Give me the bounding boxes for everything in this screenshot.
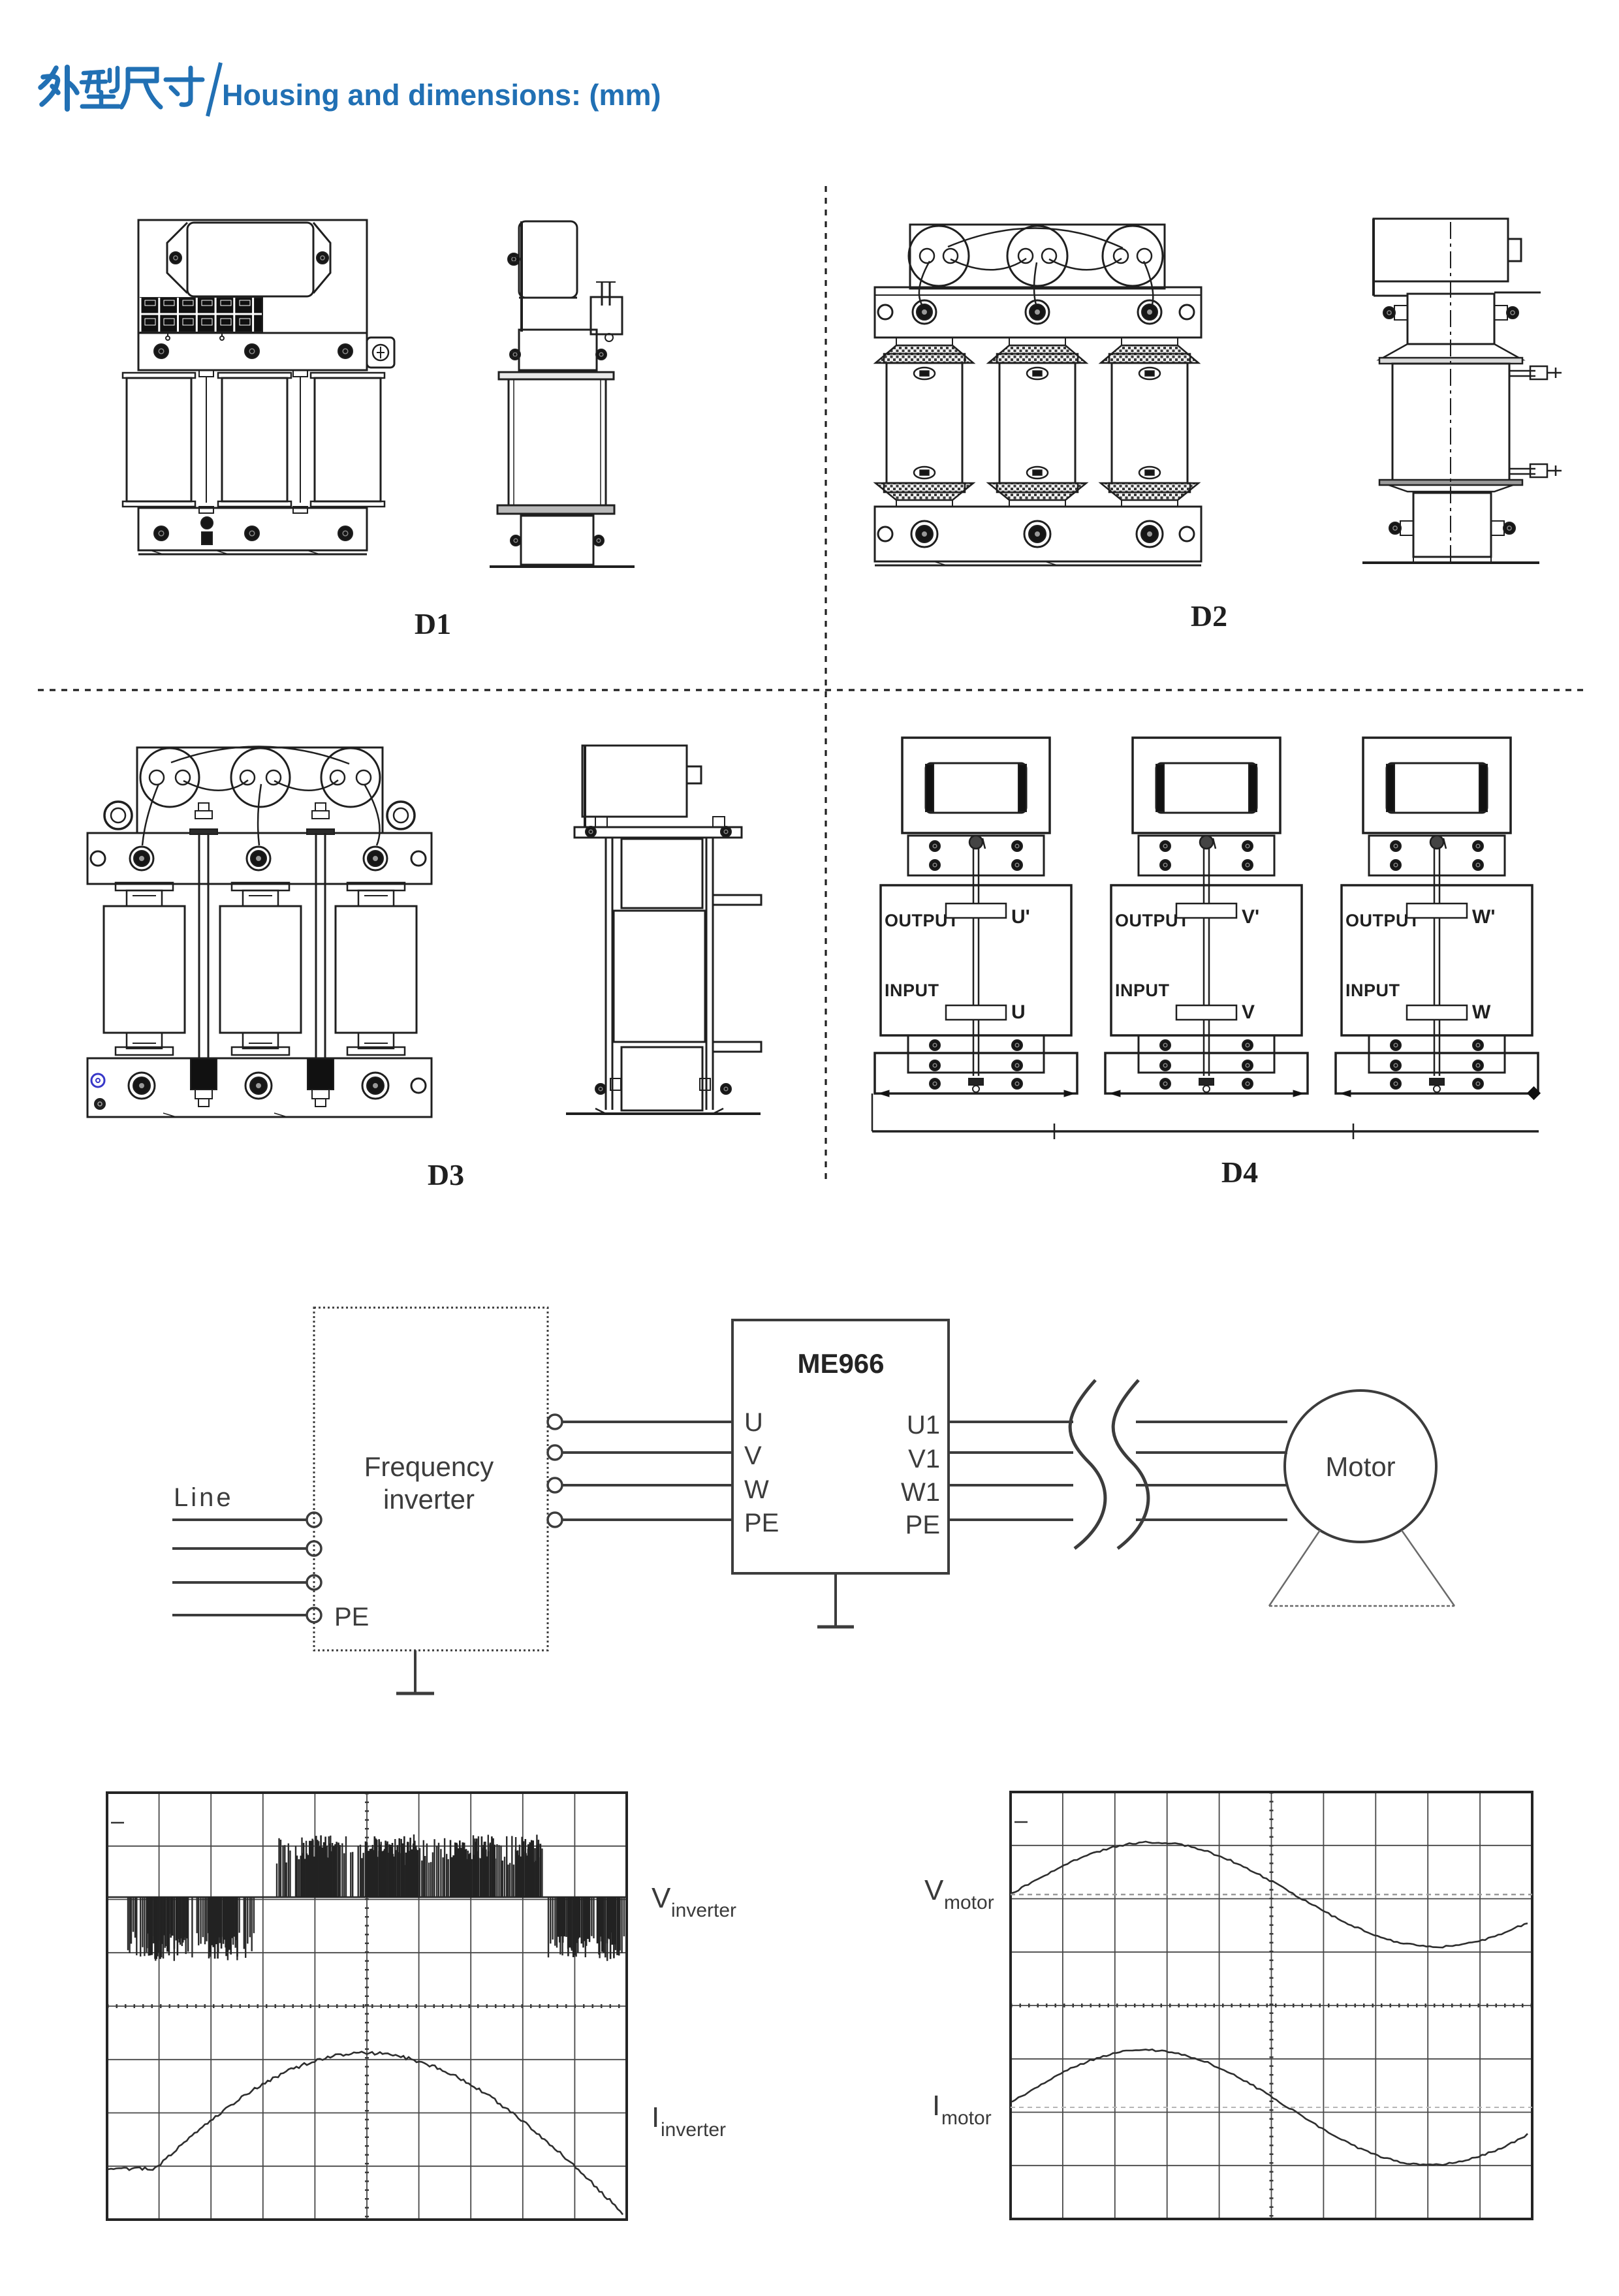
- svg-text:ME966: ME966: [797, 1348, 884, 1379]
- svg-text:V: V: [924, 1874, 944, 1906]
- svg-text:Motor: Motor: [1325, 1451, 1395, 1482]
- svg-text:inverter: inverter: [383, 1484, 475, 1515]
- svg-text:INPUT: INPUT: [885, 981, 939, 1000]
- svg-text:D3: D3: [428, 1158, 464, 1191]
- svg-text:motor: motor: [944, 1892, 994, 1913]
- svg-text:V: V: [1242, 1001, 1255, 1023]
- svg-text:PE: PE: [744, 1509, 779, 1537]
- svg-text:inverter: inverter: [671, 1900, 736, 1921]
- svg-text:inverter: inverter: [661, 2119, 726, 2141]
- svg-text:V: V: [744, 1441, 762, 1470]
- svg-text:D4: D4: [1221, 1156, 1258, 1189]
- svg-text:W: W: [1472, 1001, 1491, 1023]
- svg-text:U: U: [1011, 1001, 1026, 1023]
- svg-text:PE: PE: [334, 1603, 369, 1631]
- svg-text:W: W: [744, 1475, 769, 1504]
- svg-text:INPUT: INPUT: [1345, 981, 1400, 1000]
- svg-text:W1: W1: [901, 1478, 940, 1507]
- svg-text:Housing and dimensions: (mm): Housing and dimensions: (mm): [222, 78, 661, 112]
- svg-text:U: U: [744, 1408, 763, 1437]
- svg-text:I: I: [652, 2101, 659, 2133]
- svg-text:U1: U1: [907, 1411, 940, 1439]
- svg-text:V: V: [652, 1882, 671, 1914]
- svg-text:U': U': [1011, 906, 1030, 928]
- svg-text:V1: V1: [908, 1445, 940, 1473]
- svg-text:D2: D2: [1191, 599, 1227, 633]
- svg-text:W': W': [1472, 906, 1495, 928]
- svg-text:motor: motor: [941, 2107, 992, 2129]
- svg-text:PE: PE: [905, 1511, 940, 1539]
- svg-text:INPUT: INPUT: [1115, 981, 1170, 1000]
- svg-text:I: I: [932, 2090, 940, 2122]
- svg-text:Line: Line: [174, 1483, 234, 1512]
- svg-text:D1: D1: [415, 607, 451, 640]
- svg-text:V': V': [1242, 906, 1259, 928]
- svg-text:Frequency: Frequency: [364, 1451, 494, 1482]
